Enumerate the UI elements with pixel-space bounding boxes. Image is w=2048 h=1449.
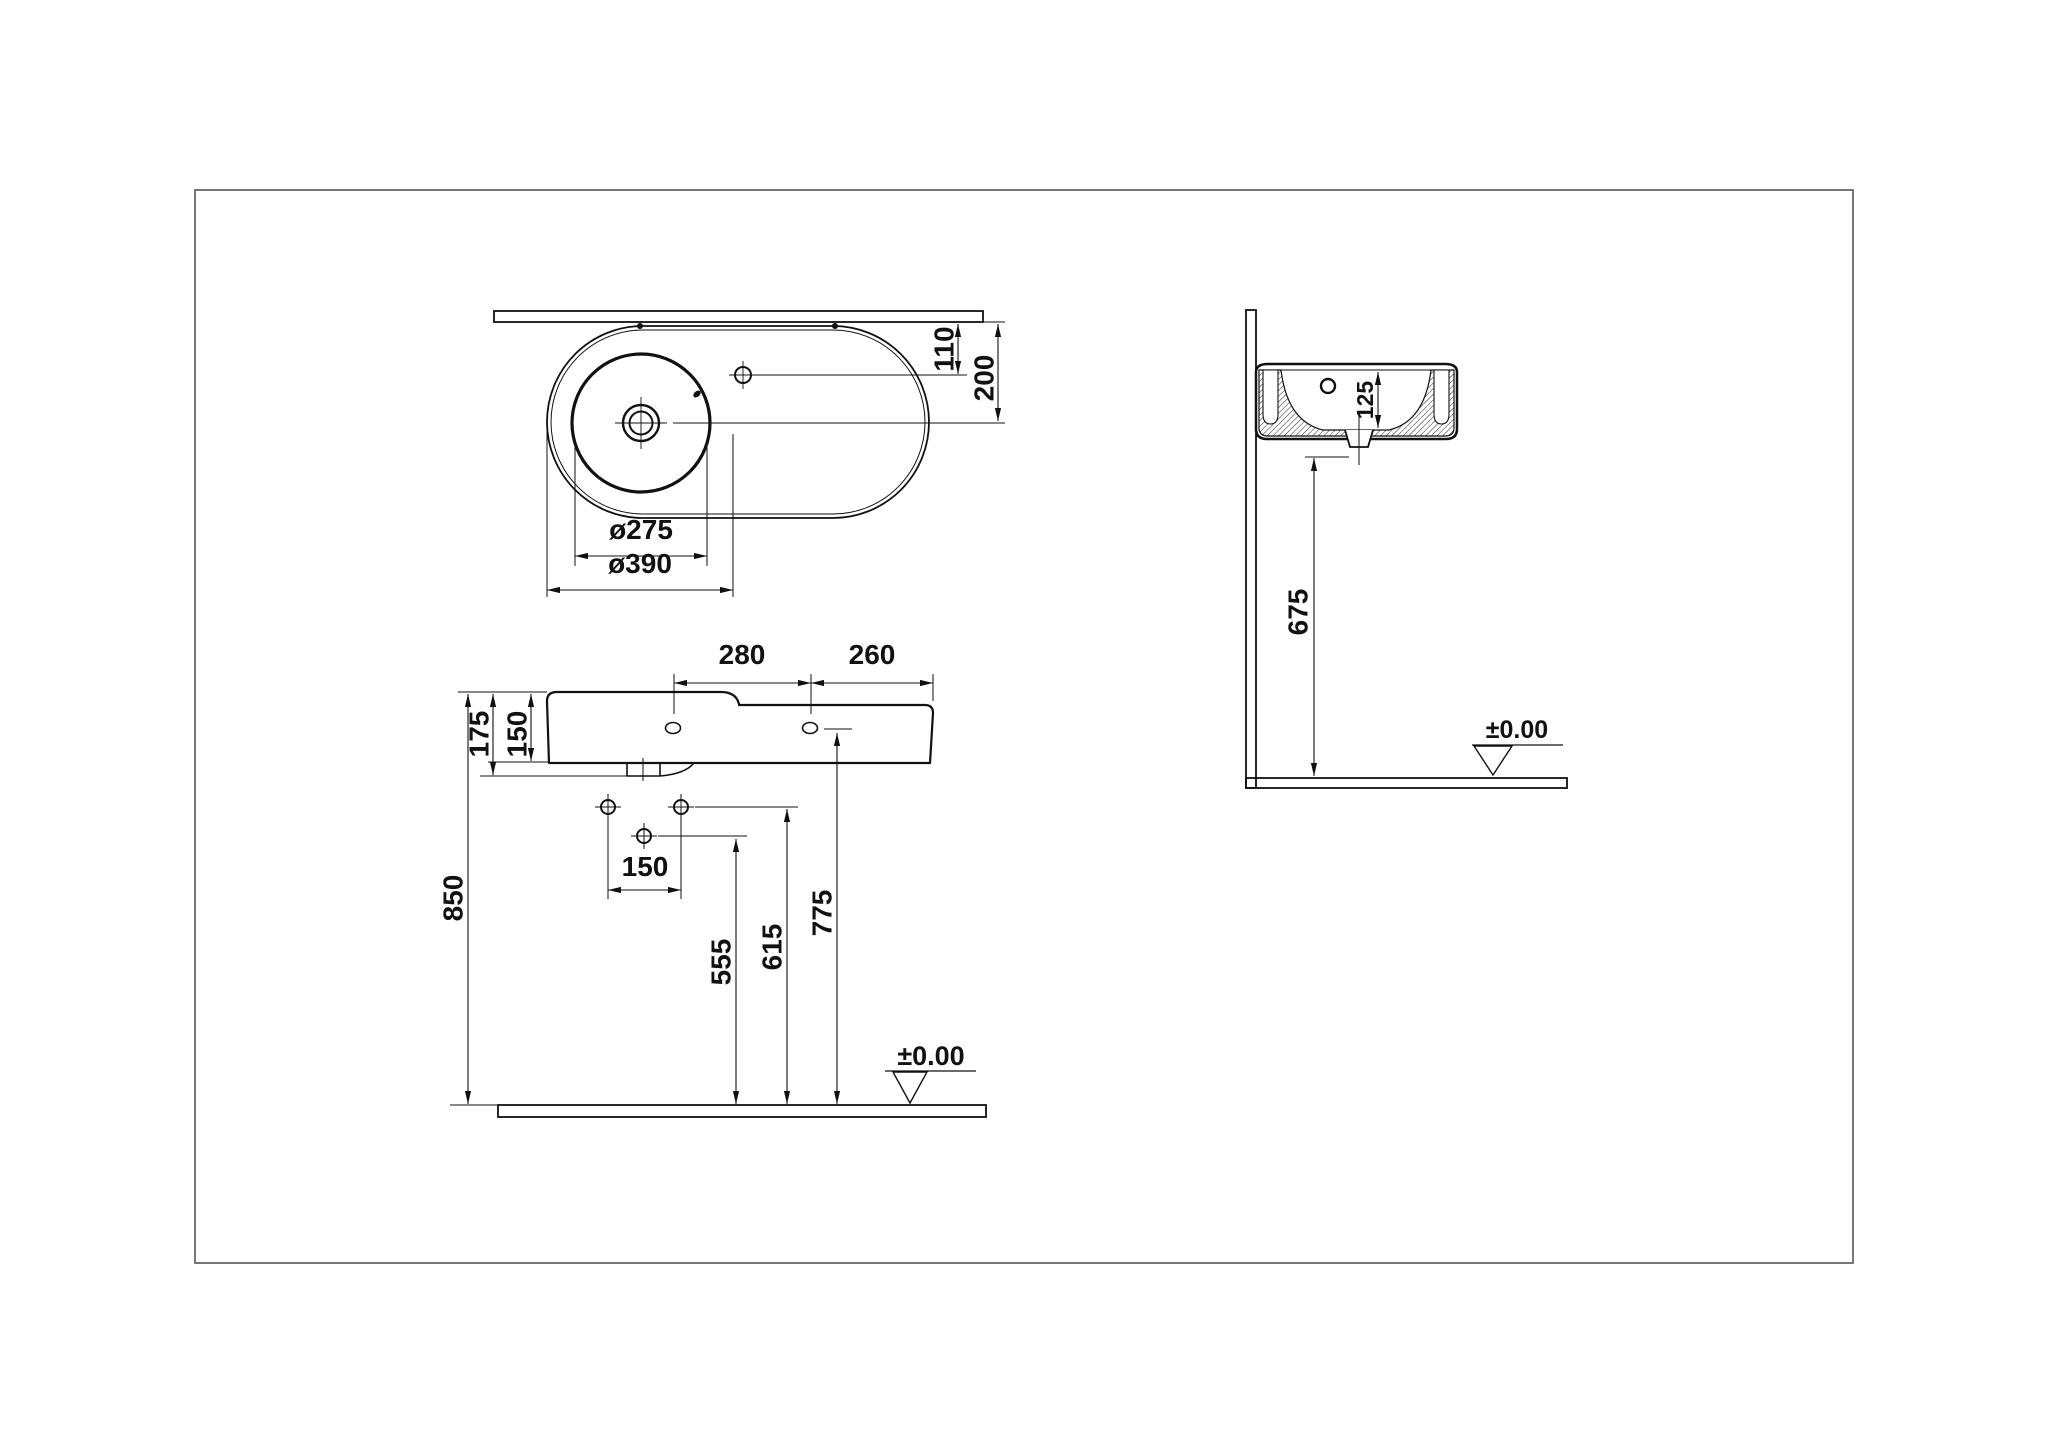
dim-label-150-body: 150 [502, 711, 533, 758]
dim-label-850: 850 [438, 875, 469, 922]
dim-label-615: 615 [757, 924, 788, 971]
dim-label-775: 775 [807, 890, 838, 937]
wall-contact-point-left [637, 323, 643, 329]
dim-label-555: 555 [706, 939, 737, 986]
faucet-hole-section [1321, 379, 1335, 393]
dim-label-deck-diameter: ø390 [608, 548, 672, 579]
rim-hollow-left [1263, 370, 1278, 424]
dim-label-200: 200 [969, 355, 1000, 402]
basin-outline-outer [547, 326, 929, 518]
face-hole-left [666, 723, 681, 734]
face-hole-right [803, 723, 818, 734]
side-datum-label: ±0.00 [1486, 716, 1548, 744]
dim-label-175: 175 [464, 711, 495, 758]
washbasin-technical-drawing: 110 200 ø275 ø390 850 175 150 280 260 [0, 0, 2048, 1449]
dim-label-260: 260 [849, 639, 896, 670]
rim-hollow-right [1434, 370, 1449, 424]
dim-label-280: 280 [719, 639, 766, 670]
dim-label-675: 675 [1283, 589, 1314, 636]
drawing-page: 110 200 ø275 ø390 850 175 150 280 260 [0, 0, 2048, 1449]
dim-label-110: 110 [929, 326, 960, 371]
dim-label-bowl-diameter: ø275 [609, 514, 673, 545]
page-background [0, 0, 2048, 1449]
dim-label-125: 125 [1352, 381, 1378, 420]
front-datum-label: ±0.00 [897, 1041, 964, 1071]
wall-contact-point-right [832, 323, 838, 329]
dim-label-150-holes: 150 [622, 851, 669, 882]
